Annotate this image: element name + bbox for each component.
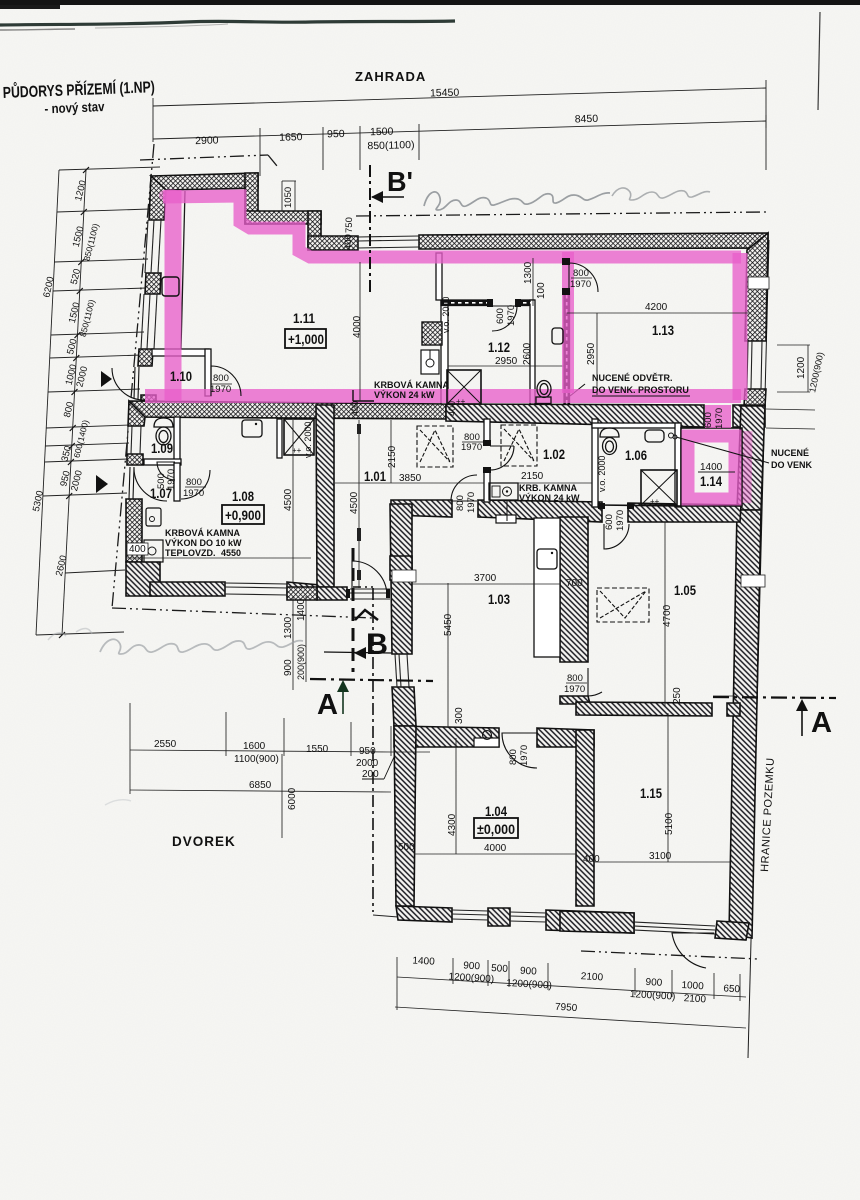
svg-text:600: 600 [604,514,615,530]
svg-text:VÝKON DO 10 kW: VÝKON DO 10 kW [165,537,242,548]
svg-text:1200: 1200 [796,356,807,379]
svg-text:KRBOVÁ KAMNA: KRBOVÁ KAMNA [374,380,449,390]
svg-text:+0,900: +0,900 [225,508,261,523]
svg-text:1970: 1970 [615,510,626,531]
svg-text:v.o. 2000: v.o. 2000 [441,297,451,333]
svg-text:++: ++ [650,497,660,506]
svg-text:1970: 1970 [466,492,477,513]
svg-text:2600: 2600 [522,342,533,365]
svg-text:3100: 3100 [649,851,672,862]
svg-text:1.03: 1.03 [488,591,510,607]
svg-text:300: 300 [454,707,465,724]
svg-text:6000: 6000 [287,787,298,810]
svg-text:v.o. 2000: v.o. 2000 [303,422,313,458]
svg-text:100: 100 [536,282,547,299]
svg-text:1.05: 1.05 [674,582,696,598]
svg-text:900: 900 [463,960,481,972]
svg-text:500: 500 [398,842,415,853]
svg-text:1.01: 1.01 [364,468,386,484]
svg-text:900: 900 [520,966,538,978]
svg-text:800: 800 [213,373,229,384]
svg-text:2100: 2100 [580,971,603,983]
svg-text:1.08: 1.08 [232,488,254,504]
svg-text:900: 900 [645,977,663,989]
svg-text:1970: 1970 [714,408,725,429]
svg-text:1650: 1650 [279,131,303,144]
svg-text:750: 750 [344,217,355,233]
svg-text:4000: 4000 [352,315,363,338]
svg-text:1970: 1970 [183,488,204,499]
svg-text:15450: 15450 [430,87,460,100]
svg-text:800: 800 [567,673,583,684]
svg-text:200: 200 [362,769,379,780]
svg-text:200(900): 200(900) [296,644,306,680]
svg-text:700: 700 [566,578,583,589]
svg-text:KRBOVÁ KAMNA: KRBOVÁ KAMNA [165,528,240,538]
svg-text:800: 800 [455,495,466,511]
svg-text:KRB. KAMNA: KRB. KAMNA [519,483,577,493]
svg-text:400: 400 [447,401,457,416]
svg-text:4300: 4300 [447,813,458,836]
svg-text:- nový stav: - nový stav [44,99,105,116]
svg-text:2950: 2950 [495,356,518,367]
svg-text:±0,000: ±0,000 [477,822,515,837]
svg-text:1970: 1970 [570,279,591,290]
svg-text:400: 400 [583,854,600,865]
svg-text:A: A [811,707,832,739]
svg-text:2150: 2150 [521,471,544,482]
svg-text:850(1100): 850(1100) [367,139,414,152]
svg-text:1400: 1400 [412,955,435,967]
svg-text:400: 400 [343,234,354,250]
svg-text:2100: 2100 [683,993,706,1005]
svg-text:600: 600 [495,308,506,324]
svg-text:1600: 1600 [243,741,266,752]
svg-text:8450: 8450 [575,113,599,126]
svg-text:1.06: 1.06 [625,447,647,463]
svg-text:TEPLOVZD.: TEPLOVZD. [165,548,216,558]
svg-text:++: ++ [456,397,466,406]
svg-text:400: 400 [350,401,360,416]
svg-text:NUCENÉ ODVĚTR.: NUCENÉ ODVĚTR. [592,372,673,383]
svg-text:1500: 1500 [370,126,394,139]
svg-text:1.14: 1.14 [700,473,722,489]
svg-text:600: 600 [703,412,714,428]
svg-text:1000: 1000 [681,980,704,992]
svg-text:2000: 2000 [356,758,379,769]
svg-text:1.11: 1.11 [293,310,315,326]
svg-text:1300: 1300 [283,616,294,639]
svg-text:4700: 4700 [662,604,673,627]
svg-text:1970: 1970 [506,305,517,326]
svg-text:3850: 3850 [399,473,422,484]
svg-text:2900: 2900 [195,134,219,147]
svg-text:4000: 4000 [484,843,507,854]
svg-text:1100(900): 1100(900) [234,754,279,765]
svg-text:1300: 1300 [523,261,534,284]
svg-text:A: A [317,689,338,721]
svg-text:800: 800 [573,268,589,279]
svg-text:1.10: 1.10 [170,368,192,384]
svg-text:5450: 5450 [443,613,454,636]
svg-text:NUCENÉ: NUCENÉ [771,448,809,458]
svg-text:DVOREK: DVOREK [172,834,236,849]
svg-text:1050: 1050 [283,187,294,208]
svg-text:4200: 4200 [645,302,668,313]
svg-text:++: ++ [292,446,302,455]
svg-text:4500: 4500 [349,491,360,514]
svg-text:7950: 7950 [555,1002,578,1014]
svg-text:1400: 1400 [700,462,723,473]
svg-text:B': B' [387,166,413,197]
svg-text:1.13: 1.13 [652,322,674,338]
svg-text:DO VENK: DO VENK [771,460,813,470]
svg-text:1970: 1970 [166,469,177,490]
svg-text:VÝKON 24 kW: VÝKON 24 kW [519,492,580,503]
svg-text:950: 950 [359,746,376,757]
svg-text:2550: 2550 [154,739,177,750]
svg-text:250: 250 [672,687,683,704]
svg-text:ZAHRADA: ZAHRADA [355,69,426,84]
svg-text:2150: 2150 [387,445,398,468]
svg-text:800: 800 [186,477,202,488]
svg-text:1400: 1400 [296,598,307,621]
svg-text:+1,000: +1,000 [288,332,324,347]
svg-text:400: 400 [129,544,146,555]
svg-text:4550: 4550 [221,548,241,558]
svg-text:650: 650 [723,983,741,995]
svg-text:4500: 4500 [283,488,294,511]
svg-text:1970: 1970 [210,384,231,395]
svg-text:DO VENK. PROSTORU: DO VENK. PROSTORU [592,385,689,395]
svg-text:6850: 6850 [249,780,272,791]
svg-text:1550: 1550 [306,744,329,755]
svg-text:1.12: 1.12 [488,339,510,355]
svg-text:800: 800 [508,749,519,765]
svg-text:900: 900 [283,659,294,676]
svg-text:2950: 2950 [586,342,597,365]
svg-text:1.15: 1.15 [640,785,662,801]
svg-text:v.o. 2000: v.o. 2000 [597,456,607,492]
svg-text:3700: 3700 [474,573,497,584]
svg-text:1.04: 1.04 [485,803,507,819]
svg-text:B: B [366,628,388,661]
svg-text:5100: 5100 [664,812,675,835]
svg-text:1970: 1970 [564,684,585,695]
svg-text:VÝKON 24 kW: VÝKON 24 kW [374,389,435,400]
svg-text:1970: 1970 [461,442,482,453]
svg-text:1.02: 1.02 [543,446,565,462]
svg-text:950: 950 [327,128,345,140]
svg-text:1970: 1970 [519,745,530,766]
svg-text:1.09: 1.09 [151,440,173,456]
